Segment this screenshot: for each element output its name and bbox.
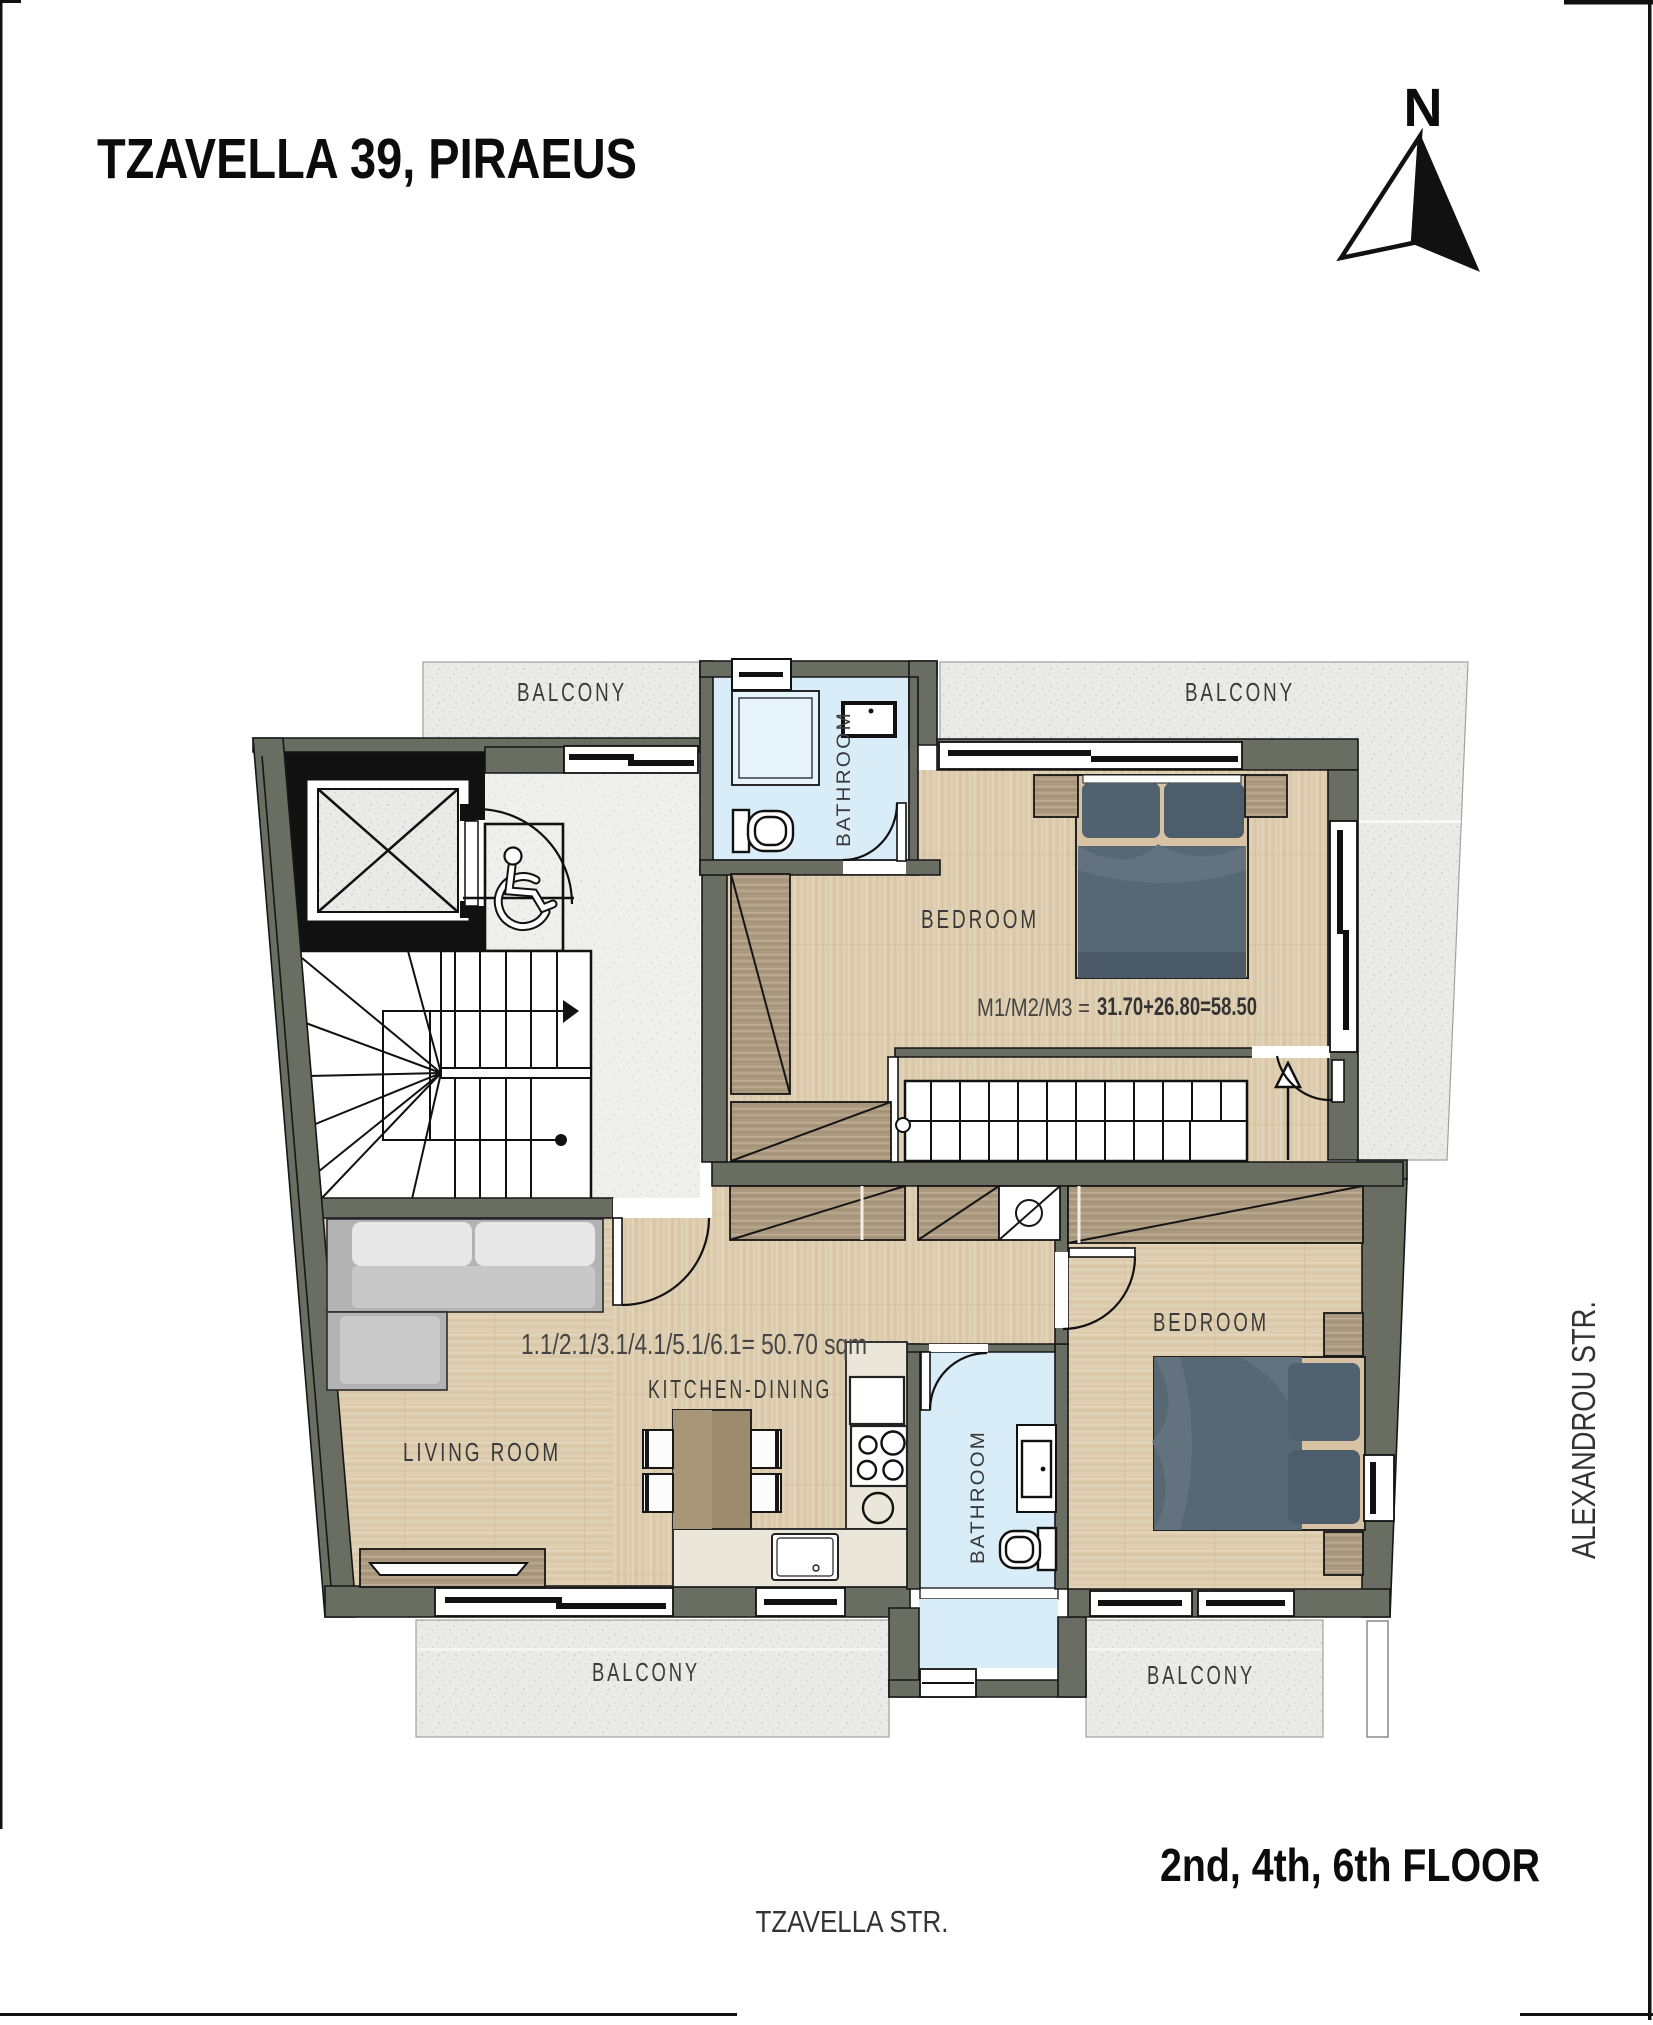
svg-text:TZAVELLA 39, PIRAEUS: TZAVELLA 39, PIRAEUS — [97, 127, 637, 191]
svg-text:BALCONY: BALCONY — [1185, 677, 1295, 707]
svg-text:BATHROOM: BATHROOM — [834, 711, 855, 847]
svg-text:1.1/2.1/3.1/4.1/5.1/6.1= 50.70: 1.1/2.1/3.1/4.1/5.1/6.1= 50.70 sqm — [521, 1329, 867, 1361]
svg-text:KITCHEN-DINING: KITCHEN-DINING — [648, 1374, 832, 1404]
svg-text:BALCONY: BALCONY — [592, 1657, 700, 1687]
svg-text:BALCONY: BALCONY — [1147, 1660, 1255, 1690]
svg-text:M1/M2/M3 =: M1/M2/M3 = — [977, 994, 1090, 1022]
svg-text:BATHROOM: BATHROOM — [968, 1430, 989, 1564]
svg-text:2nd, 4th, 6th FLOOR: 2nd, 4th, 6th FLOOR — [1160, 1839, 1540, 1891]
svg-text:BEDROOM: BEDROOM — [921, 904, 1039, 934]
svg-text:BEDROOM: BEDROOM — [1153, 1307, 1269, 1337]
svg-text:31.70+26.80=58.50: 31.70+26.80=58.50 — [1097, 993, 1257, 1021]
svg-text:ALEXANDROU STR.: ALEXANDROU STR. — [1565, 1301, 1602, 1559]
svg-text:LIVING ROOM: LIVING ROOM — [403, 1437, 561, 1467]
svg-text:TZAVELLA STR.: TZAVELLA STR. — [756, 1904, 949, 1939]
svg-text:BALCONY: BALCONY — [517, 677, 627, 707]
svg-text:N: N — [1404, 78, 1443, 138]
